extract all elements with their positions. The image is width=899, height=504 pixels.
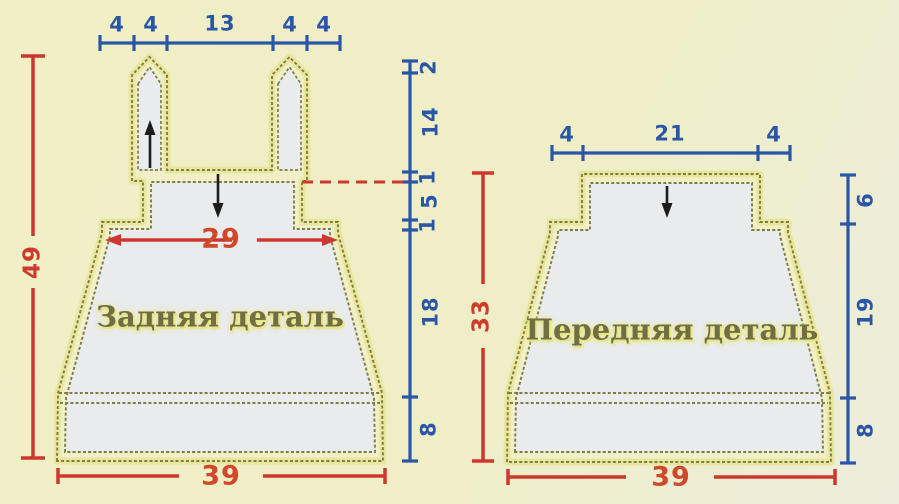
diagram-svg bbox=[0, 0, 899, 504]
dim-front-side-height-2: 19 bbox=[856, 296, 877, 327]
dim-front-total-height: 33 bbox=[471, 299, 494, 333]
dim-back-chest-width: 29 bbox=[201, 226, 241, 253]
dim-back-top-width-4: 4 bbox=[282, 15, 298, 36]
dim-back-top-width-1: 4 bbox=[109, 15, 125, 36]
dim-back-top-width-3: 13 bbox=[204, 14, 235, 35]
back-strap-right bbox=[278, 67, 301, 170]
dim-front-top-width-2: 21 bbox=[654, 124, 685, 145]
dim-front-side-height-3: 8 bbox=[856, 422, 877, 438]
front-piece-label: Передняя деталь bbox=[526, 316, 819, 345]
dim-back-total-height: 49 bbox=[22, 245, 45, 279]
dim-back-side-height-6: 18 bbox=[421, 296, 442, 327]
dim-front-bottom-width: 39 bbox=[651, 464, 691, 491]
dim-back-side-height-7: 8 bbox=[419, 421, 440, 437]
dim-back-top-width-2: 4 bbox=[143, 15, 159, 36]
dim-back-bottom-width: 39 bbox=[201, 463, 241, 490]
back-piece-label: Задняя деталь bbox=[96, 303, 344, 332]
dim-back-side-height-4: 5 bbox=[420, 193, 441, 209]
dim-back-side-height-5: 1 bbox=[418, 217, 439, 233]
dim-front-top-width-3: 4 bbox=[766, 125, 782, 146]
dim-front-top-width-1: 4 bbox=[559, 125, 575, 146]
dim-back-side-height-1: 2 bbox=[419, 59, 440, 75]
dim-back-side-height-3: 1 bbox=[418, 169, 439, 185]
pattern-diagram: 4 4 13 4 4 2 14 1 5 1 18 8 49 29 39 Задн… bbox=[0, 0, 899, 504]
dim-front-side-height-1: 6 bbox=[856, 192, 877, 208]
dim-back-top-width-5: 4 bbox=[316, 15, 332, 36]
back-piece-shape bbox=[57, 57, 383, 461]
dim-back-side-height-2: 14 bbox=[421, 106, 442, 137]
